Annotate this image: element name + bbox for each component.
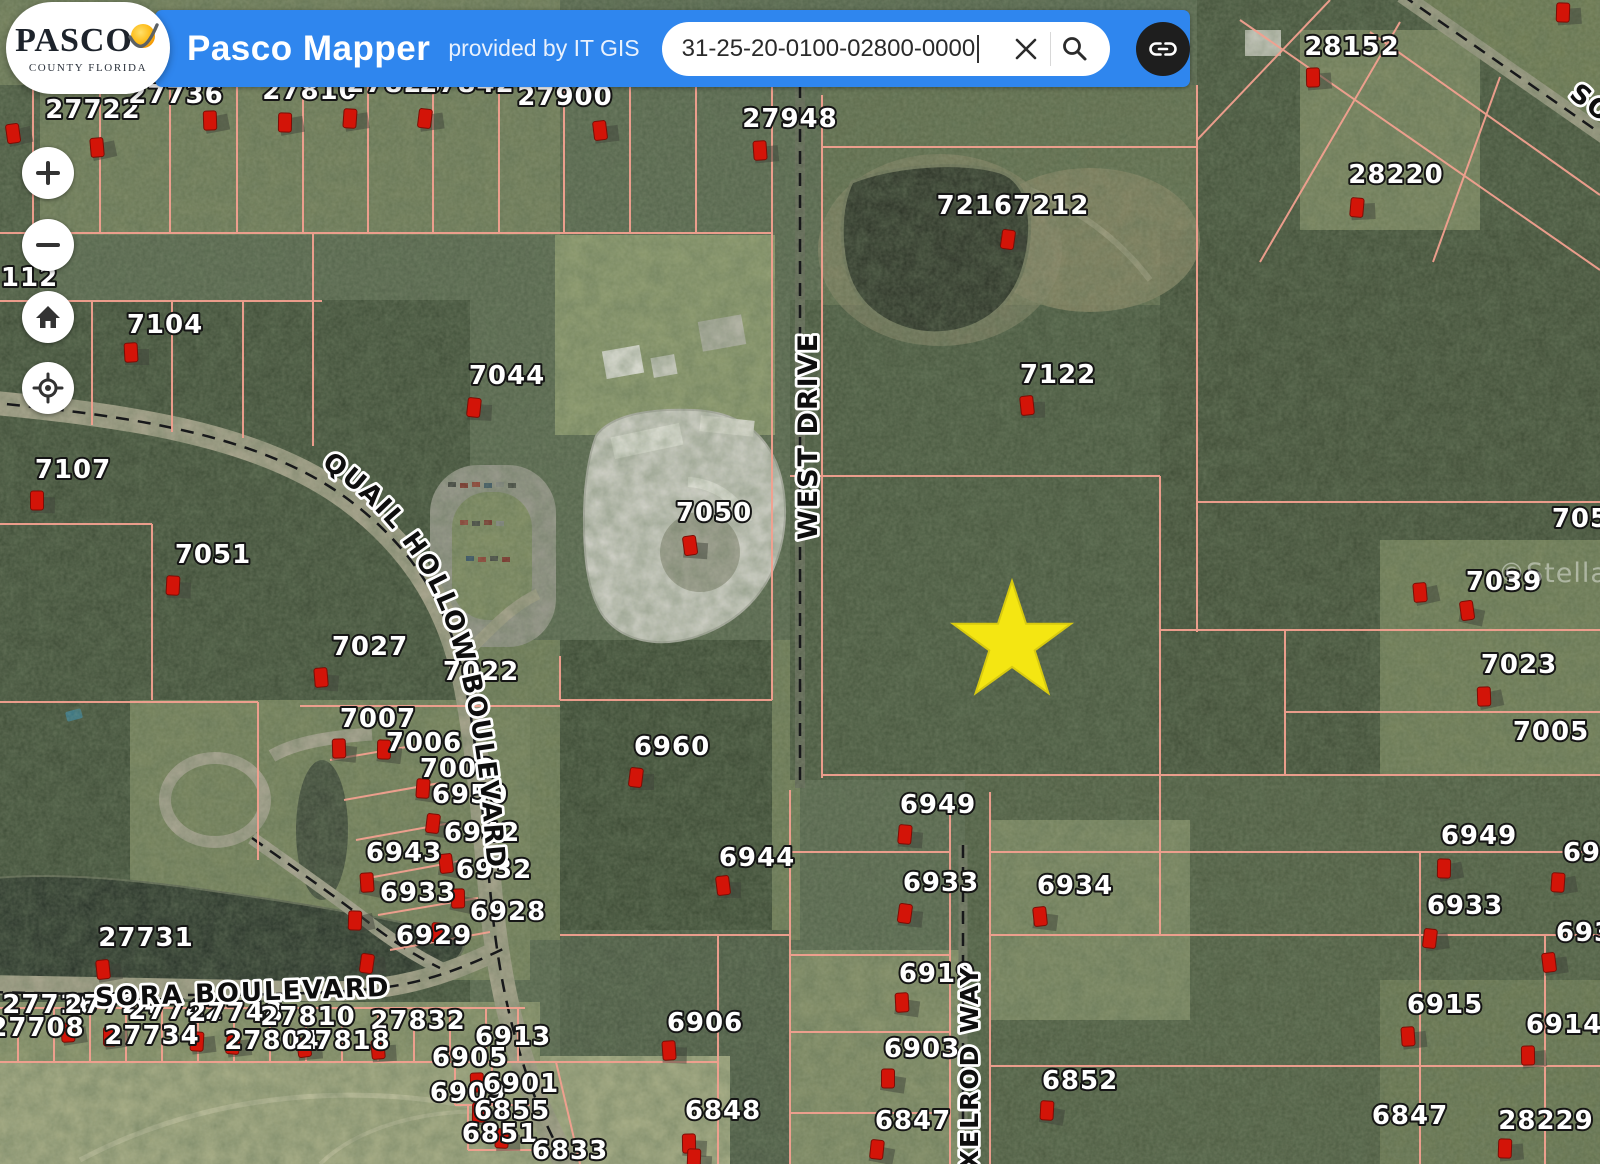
house-marker[interactable] bbox=[343, 109, 357, 129]
parcel-label: 7104 bbox=[127, 310, 203, 340]
zoom-in-button[interactable] bbox=[22, 147, 74, 199]
parcel-label: 7005 bbox=[1513, 717, 1589, 747]
parcel-label: 6852 bbox=[1042, 1066, 1118, 1096]
crosshair-icon bbox=[32, 372, 64, 404]
house-marker[interactable] bbox=[332, 739, 346, 758]
parcel-label: 27708 bbox=[0, 1013, 85, 1043]
parcel-label: 7051 bbox=[175, 540, 251, 570]
parcel-label: 27818 bbox=[295, 1026, 390, 1056]
parcel-label: 6847 bbox=[1372, 1101, 1448, 1131]
minus-icon bbox=[33, 230, 63, 260]
house-marker[interactable] bbox=[1401, 1027, 1415, 1047]
parcel-label: 6949 bbox=[900, 790, 976, 820]
house-marker[interactable] bbox=[278, 113, 291, 132]
parcel-label: 6833 bbox=[532, 1136, 608, 1164]
house-marker[interactable] bbox=[1413, 582, 1428, 602]
house-marker[interactable] bbox=[628, 767, 643, 787]
app-title: Pasco Mapper bbox=[187, 29, 430, 69]
parcel-label: 6933 bbox=[1556, 918, 1600, 948]
share-link-button[interactable] bbox=[1136, 22, 1190, 76]
logo-subtext: COUNTY FLORIDA bbox=[29, 62, 147, 74]
parcel-label: 6901 bbox=[483, 1069, 559, 1099]
house-marker[interactable] bbox=[882, 1069, 895, 1088]
house-marker[interactable] bbox=[166, 576, 180, 596]
house-marker[interactable] bbox=[662, 1041, 676, 1061]
parcel-label: 28229 bbox=[1498, 1106, 1593, 1136]
parcel-label: 6914 bbox=[1526, 1010, 1600, 1040]
header-bar: Pasco Mapper provided by IT GIS 31-25-20… bbox=[155, 10, 1190, 87]
house-marker[interactable] bbox=[1040, 1101, 1054, 1121]
road-label: AXELROD WAY bbox=[955, 965, 984, 1164]
parcel-label: 28220 bbox=[1348, 160, 1443, 190]
parcel-label: 6928 bbox=[470, 897, 546, 927]
house-marker[interactable] bbox=[1551, 873, 1565, 893]
parcel-label: 6906 bbox=[667, 1008, 743, 1038]
house-marker[interactable] bbox=[124, 343, 138, 363]
house-marker[interactable] bbox=[360, 873, 374, 893]
magnifier-icon bbox=[1060, 34, 1090, 64]
parcel-label: 6934 bbox=[1037, 871, 1113, 901]
house-marker[interactable] bbox=[1477, 687, 1491, 706]
text-caret bbox=[977, 35, 979, 63]
parcel-label: 27948 bbox=[742, 104, 837, 134]
house-marker[interactable] bbox=[425, 813, 440, 833]
parcel-label: 7044 bbox=[469, 361, 545, 391]
parcel-label: 6848 bbox=[685, 1096, 761, 1126]
plus-icon bbox=[33, 158, 63, 188]
house-marker[interactable] bbox=[96, 959, 111, 979]
parcel-label: 6851 bbox=[462, 1119, 538, 1149]
house-marker[interactable] bbox=[1459, 600, 1475, 621]
parcel-label: 6933 bbox=[380, 878, 456, 908]
logo-text: PASCO bbox=[15, 24, 133, 58]
zoom-out-button[interactable] bbox=[22, 219, 74, 271]
pasco-county-logo: PASCO COUNTY FLORIDA bbox=[6, 2, 170, 94]
parcel-label: 6903 bbox=[884, 1034, 960, 1064]
house-marker[interactable] bbox=[898, 824, 913, 844]
parcel-label: 72167212 bbox=[937, 191, 1090, 221]
search-input[interactable]: 31-25-20-0100-02800-0000 bbox=[682, 35, 976, 63]
parcel-label: 6943 bbox=[366, 838, 442, 868]
parcel-label: 7053 bbox=[1552, 504, 1600, 534]
parcel-label: 6944 bbox=[719, 843, 795, 873]
house-marker[interactable] bbox=[897, 903, 913, 924]
divider bbox=[1050, 32, 1051, 66]
house-marker[interactable] bbox=[715, 875, 730, 895]
parcel-label: 6847 bbox=[875, 1106, 951, 1136]
house-marker[interactable] bbox=[466, 397, 481, 417]
parcel-label: 6933 bbox=[903, 868, 979, 898]
house-marker[interactable] bbox=[895, 993, 909, 1013]
house-marker[interactable] bbox=[682, 535, 698, 556]
parcel-label: 7027 bbox=[332, 632, 408, 662]
house-marker[interactable] bbox=[1350, 197, 1365, 217]
house-marker[interactable] bbox=[90, 137, 105, 157]
house-marker[interactable] bbox=[31, 491, 44, 510]
parcel-label: 6949 bbox=[1563, 838, 1600, 868]
house-marker[interactable] bbox=[1498, 1139, 1512, 1158]
house-marker[interactable] bbox=[348, 911, 362, 930]
parcel-label: 7107 bbox=[35, 455, 111, 485]
house-marker[interactable] bbox=[1306, 68, 1319, 87]
house-marker[interactable] bbox=[203, 111, 217, 130]
parcel-label: 6933 bbox=[1427, 891, 1503, 921]
search-button[interactable] bbox=[1054, 28, 1096, 70]
pasco-mapper-window: 2772227736278102782827842279002794828152… bbox=[0, 0, 1600, 1164]
house-marker[interactable] bbox=[1020, 395, 1035, 415]
parcel-label: 7122 bbox=[1020, 360, 1096, 390]
parcel-label: 27731 bbox=[98, 923, 193, 953]
house-marker[interactable] bbox=[1437, 859, 1450, 878]
house-marker[interactable] bbox=[1556, 3, 1570, 22]
app-subtitle: provided by IT GIS bbox=[448, 35, 639, 62]
house-marker[interactable] bbox=[1541, 952, 1556, 972]
parcel-label: 7050 bbox=[676, 498, 752, 528]
link-icon bbox=[1148, 34, 1178, 64]
house-marker[interactable] bbox=[5, 123, 21, 144]
parcel-label: 6960 bbox=[634, 732, 710, 762]
home-button[interactable] bbox=[22, 291, 74, 343]
parcel-label: 27722 bbox=[45, 95, 140, 125]
parcel-label: 6949 bbox=[1441, 821, 1517, 851]
parcel-label: 27734 bbox=[104, 1021, 199, 1051]
house-marker[interactable] bbox=[417, 108, 432, 128]
clear-search-button[interactable] bbox=[1005, 28, 1047, 70]
sun-swoosh-icon bbox=[127, 22, 161, 60]
house-marker[interactable] bbox=[753, 141, 767, 161]
search-bar[interactable]: 31-25-20-0100-02800-0000 bbox=[662, 22, 1110, 76]
home-icon bbox=[33, 302, 63, 332]
house-marker[interactable] bbox=[687, 1149, 701, 1164]
house-marker[interactable] bbox=[1033, 906, 1048, 926]
map-canvas[interactable]: 2772227736278102782827842279002794828152… bbox=[0, 0, 1600, 1164]
watermark: ©Stellar MLS bbox=[1498, 558, 1600, 589]
house-marker[interactable] bbox=[1000, 229, 1016, 250]
house-marker[interactable] bbox=[314, 667, 329, 687]
house-marker[interactable] bbox=[1422, 928, 1437, 948]
parcel-label: 6929 bbox=[396, 921, 472, 951]
locate-button[interactable] bbox=[22, 362, 74, 414]
parcel-label: 7023 bbox=[1481, 650, 1557, 680]
house-marker[interactable] bbox=[592, 120, 607, 140]
house-marker[interactable] bbox=[869, 1139, 884, 1159]
house-marker[interactable] bbox=[1521, 1046, 1534, 1065]
parcel-label: 6915 bbox=[1407, 990, 1483, 1020]
x-icon bbox=[1013, 36, 1039, 62]
house-marker[interactable] bbox=[359, 953, 375, 974]
road-label: WEST DRIVE bbox=[793, 332, 824, 540]
parcel-label: 28152 bbox=[1304, 32, 1399, 62]
